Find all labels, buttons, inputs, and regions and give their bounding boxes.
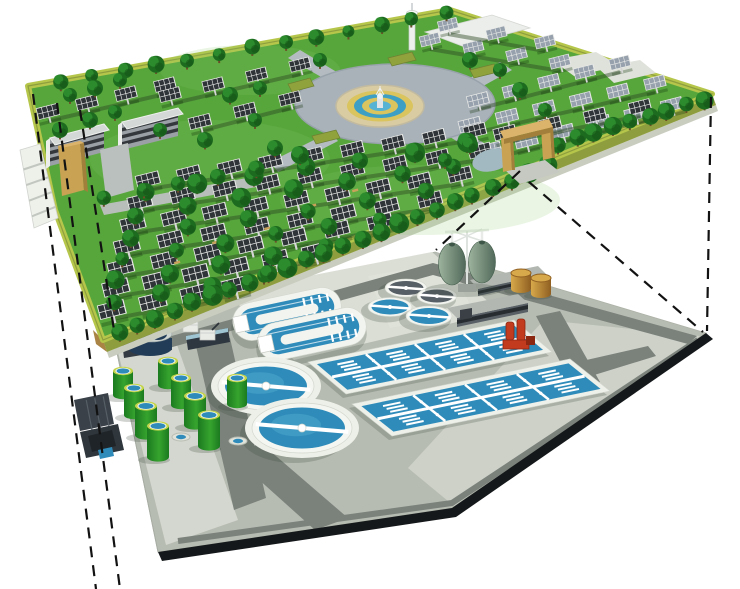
illustration-underground-wwtp-park [0, 0, 740, 589]
projection-line [707, 97, 711, 331]
service-building [460, 308, 472, 320]
park-road [100, 143, 134, 198]
ground-tank-pit [172, 433, 190, 441]
scene-svg [0, 0, 740, 589]
ground-tank-pit [229, 437, 247, 445]
